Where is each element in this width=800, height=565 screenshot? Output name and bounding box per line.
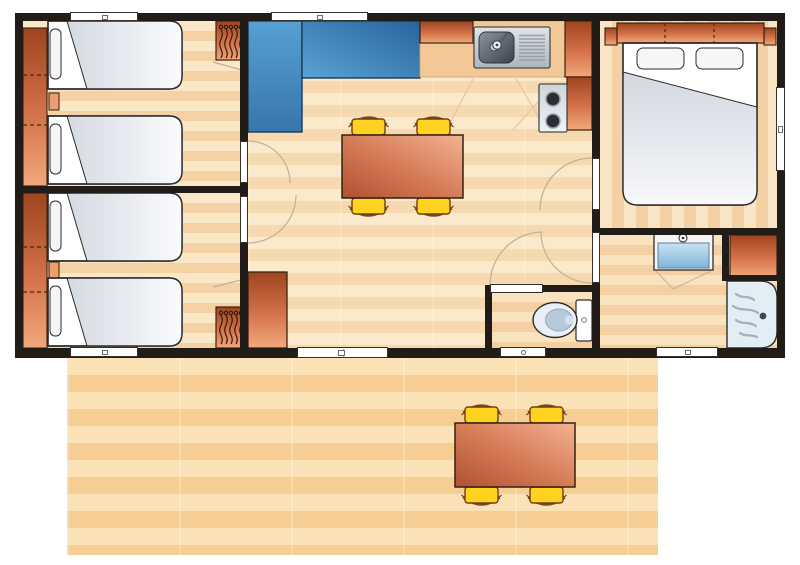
wall-bath-stub-horizontal [722,275,777,281]
bathroom-floor [600,235,777,348]
window-bathroom [656,347,718,357]
door-bathroom [592,232,600,283]
window-handle [521,350,526,355]
window-wc [500,347,546,357]
wall-wc-left [485,285,492,348]
door-handle [338,350,345,356]
twin-bedroom-bottom-floor [23,193,240,348]
window-handle [685,350,691,355]
door-bedroom-bottom [240,196,248,243]
wall-bedrooms-living-stub [240,183,248,196]
wall-wc-top-right [543,285,592,292]
door-bedroom-top [240,141,248,183]
wall-bedrooms-divider [15,186,248,193]
sliding-door-terrace [297,347,388,358]
window-bedroom-top [70,12,138,21]
wall-living-master-b [592,283,600,348]
wall-exterior-right [777,13,785,358]
window-bedroom-bottom [70,347,138,357]
door-wc [490,284,543,293]
terrace-deck [67,358,658,555]
window-handle [317,15,323,20]
wall-living-master-a [592,21,600,158]
floor-plan-canvas [0,0,800,565]
wall-bedrooms-living-a [240,21,248,141]
window-handle [778,126,783,133]
wall-bedrooms-living-b [240,243,248,348]
window-master-right [776,87,785,171]
wall-master-bath-divider [592,228,785,235]
twin-bedroom-top-floor [23,21,240,186]
master-bedroom-floor [600,21,777,228]
door-master-bedroom [592,158,600,210]
wc-floor [492,292,592,348]
window-handle [102,350,108,355]
window-living [271,12,368,21]
window-handle [102,15,108,20]
